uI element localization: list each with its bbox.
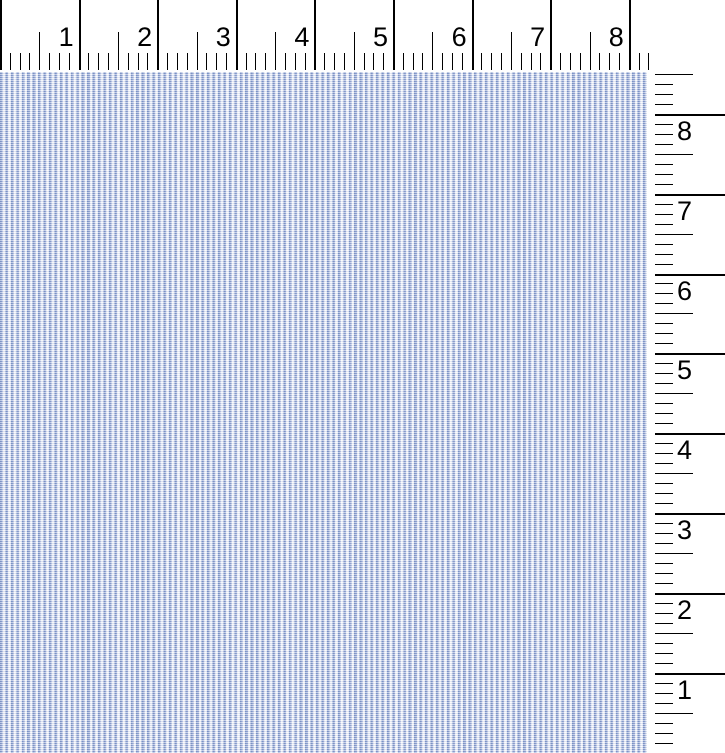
top-ruler-tick [29,53,30,70]
top-ruler-tick [216,53,217,70]
top-ruler-tick [79,0,81,70]
right-ruler-tick [655,743,673,744]
top-ruler-tick [98,53,99,70]
right-ruler-tick [655,74,693,75]
right-ruler-tick [655,154,693,155]
right-ruler-tick [655,104,673,105]
top-ruler-tick [540,53,541,70]
right-ruler-tick [655,303,673,304]
right-ruler-tick [655,653,673,654]
top-ruler-tick [481,53,482,70]
right-ruler-tick [655,204,673,205]
top-ruler-tick [177,53,178,70]
right-ruler-tick [655,543,673,544]
right-ruler-tick [655,363,673,364]
right-ruler-tick [655,254,673,255]
top-ruler-number: 6 [423,24,467,51]
right-ruler-tick [655,453,673,454]
right-ruler-tick [655,214,673,215]
top-ruler-tick [580,53,581,70]
right-ruler-tick [655,124,673,125]
top-ruler-tick [609,53,610,70]
right-ruler-tick [655,383,673,384]
top-ruler-tick [619,53,620,70]
top-ruler-number: 8 [580,24,624,51]
top-ruler-tick [560,53,561,70]
top-ruler-tick [88,53,89,70]
right-ruler-tick [655,663,673,664]
top-ruler-tick [472,0,474,70]
right-ruler-tick [655,533,673,534]
right-ruler-tick [655,463,673,464]
right-ruler-tick [655,523,673,524]
top-ruler-tick [265,53,266,70]
top-ruler-number: 7 [501,24,545,51]
top-ruler-tick [629,0,631,70]
top-ruler-number: 3 [187,24,231,51]
right-ruler-tick [655,703,673,704]
right-ruler-number: 2 [677,597,692,624]
top-ruler-tick [167,53,168,70]
right-ruler-tick [655,234,693,235]
right-ruler-tick [655,94,673,95]
top-ruler-tick [452,53,453,70]
right-ruler-tick [655,244,673,245]
top-ruler-tick [226,53,227,70]
right-ruler-number: 6 [677,278,692,305]
right-ruler: 12345678 [655,72,725,753]
top-ruler-tick [157,0,159,70]
top-ruler-tick [393,0,395,70]
top-ruler-tick [570,53,571,70]
top-ruler: 12345678 [0,0,655,72]
right-ruler-tick [655,733,673,734]
right-ruler-number: 5 [677,357,692,384]
top-ruler-tick [246,53,247,70]
right-ruler-number: 4 [677,437,692,464]
top-ruler-tick [373,53,374,70]
right-ruler-number: 1 [677,677,692,704]
right-ruler-number: 8 [677,118,692,145]
top-ruler-tick [20,53,21,70]
top-ruler-tick [648,53,649,70]
right-ruler-tick [655,423,673,424]
right-ruler-tick [655,693,673,694]
top-ruler-tick [422,53,423,70]
right-ruler-tick [655,323,673,324]
right-ruler-tick [655,723,673,724]
right-ruler-tick [655,413,673,414]
right-ruler-tick [655,623,673,624]
right-ruler-tick [655,633,693,634]
top-ruler-tick [255,53,256,70]
right-ruler-tick [655,483,673,484]
top-ruler-tick [344,53,345,70]
top-ruler-tick [383,53,384,70]
top-ruler-number: 4 [265,24,309,51]
top-ruler-tick [0,0,2,70]
right-ruler-tick [655,164,673,165]
right-ruler-tick [655,643,673,644]
right-ruler-tick [655,283,673,284]
right-ruler-tick [655,683,673,684]
top-ruler-tick [147,53,148,70]
top-ruler-tick [59,53,60,70]
right-ruler-tick [655,174,673,175]
right-ruler-tick [655,573,673,574]
right-ruler-tick [655,343,673,344]
right-ruler-tick [655,503,673,504]
fabric-swatch [0,72,647,753]
top-ruler-tick [403,53,404,70]
right-ruler-number: 3 [677,517,692,544]
right-ruler-tick [655,373,673,374]
top-ruler-tick [108,53,109,70]
top-ruler-number: 2 [108,24,152,51]
right-ruler-tick [655,403,673,404]
right-ruler-tick [655,613,673,614]
right-ruler-tick [655,224,673,225]
top-ruler-tick [314,0,316,70]
right-ruler-tick [655,313,693,314]
right-ruler-tick [655,583,673,584]
top-ruler-number: 1 [30,24,74,51]
right-ruler-tick [655,713,693,714]
top-ruler-tick [462,53,463,70]
top-ruler-tick [334,53,335,70]
right-ruler-tick [655,84,673,85]
top-ruler-number: 5 [344,24,388,51]
top-ruler-tick [285,53,286,70]
right-ruler-tick [655,184,673,185]
top-ruler-tick [531,53,532,70]
top-ruler-tick [69,53,70,70]
right-ruler-tick [655,393,693,394]
top-ruler-tick [364,53,365,70]
right-ruler-tick [655,473,693,474]
top-ruler-tick [413,53,414,70]
right-ruler-tick [655,493,673,494]
top-ruler-tick [295,53,296,70]
right-ruler-tick [655,333,673,334]
top-ruler-tick [521,53,522,70]
top-ruler-tick [138,53,139,70]
top-ruler-tick [324,53,325,70]
right-ruler-tick [655,443,673,444]
top-ruler-tick [599,53,600,70]
top-ruler-tick [305,53,306,70]
top-ruler-tick [236,0,238,70]
top-ruler-tick [491,53,492,70]
top-ruler-tick [639,53,640,70]
right-ruler-tick [655,603,673,604]
right-ruler-tick [655,264,673,265]
top-ruler-tick [128,53,129,70]
top-ruler-tick [10,53,11,70]
right-ruler-number: 7 [677,198,692,225]
right-ruler-tick [655,553,693,554]
top-ruler-tick [206,53,207,70]
right-ruler-tick [655,144,673,145]
right-ruler-tick [655,563,673,564]
right-ruler-tick [655,293,673,294]
top-ruler-tick [501,53,502,70]
top-ruler-tick [442,53,443,70]
top-ruler-tick [187,53,188,70]
right-ruler-tick [655,134,673,135]
fabric-scale-viewer: 12345678 12345678 [0,0,725,753]
top-ruler-tick [550,0,552,70]
top-ruler-tick [49,53,50,70]
